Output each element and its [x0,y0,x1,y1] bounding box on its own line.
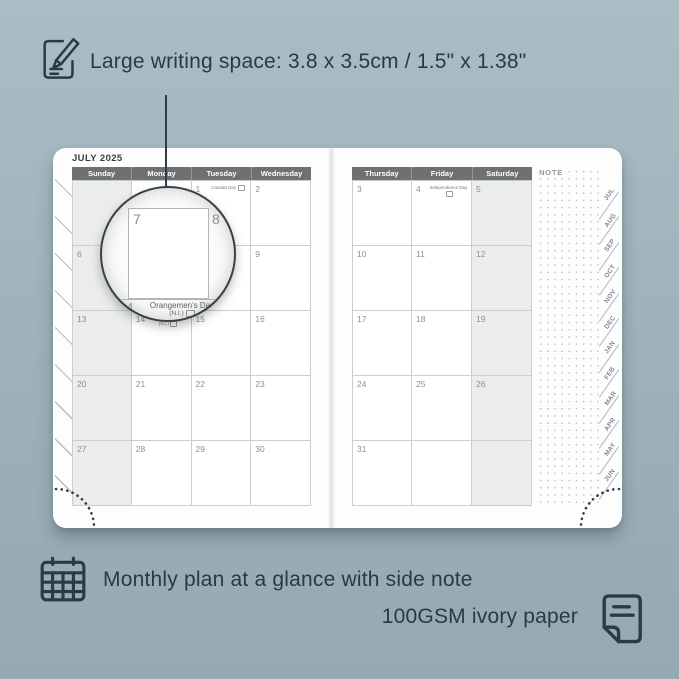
day-header-friday: Friday [411,167,471,180]
calendar-cell: 31 [352,441,412,506]
calendar-cell: 30 [251,441,311,506]
date-number: 30 [255,444,264,454]
date-number: 12 [476,249,485,259]
calendar-cell: 17 [352,311,412,376]
calendar-cell [472,441,532,506]
month-tab-jan: JAN [596,338,622,364]
date-number: 9 [255,249,260,259]
bottom-caption-line1: Monthly plan at a glance with side note [103,568,473,592]
pencil-note-icon [37,32,83,81]
calendar-cell: 2 [251,181,311,246]
date-number: 22 [196,379,205,389]
day-header-saturday: Saturday [472,167,532,180]
calendar-cell: 11 [412,246,472,311]
calendar-cell: 18 [412,311,472,376]
month-tab-may: MAY [596,440,622,466]
date-number: 4 [416,184,421,194]
product-image: Large writing space: 3.8 x 3.5cm / 1.5" … [0,0,679,679]
flag-icon [446,191,453,197]
calendar-cell: 29 [192,441,252,506]
month-tab-sep: SEP [596,236,622,262]
calendar-grid-icon [38,554,88,604]
calendar-cell: 15 [192,311,252,376]
date-number: 10 [357,249,366,259]
calendar-cell: 19 [472,311,532,376]
calendar-cell: 26 [472,376,532,441]
magnified-holiday-region: (N.I.) [136,310,228,317]
calendar-cell: 4Independence Day [412,181,472,246]
date-number: 20 [77,379,86,389]
date-number: 24 [357,379,366,389]
magnified-date-7: 7 [133,211,141,227]
month-tab-jun: JUN [596,466,622,492]
day-header-row-left: Sunday Monday Tuesday Wednesday [72,167,311,180]
date-number: 19 [476,314,485,324]
top-caption: Large writing space: 3.8 x 3.5cm / 1.5" … [90,50,526,74]
date-number: 31 [357,444,366,454]
holiday-label: Independence Day [428,185,469,197]
holiday-label: Canada Day [208,185,249,191]
magnified-holiday-name: Orangemen's Day [136,301,228,310]
month-tab-label: JUL [603,187,616,202]
calendar-cell: 16 [251,311,311,376]
date-number: 5 [476,184,481,194]
date-number: 13 [77,314,86,324]
month-tab-nov: NOV [596,287,622,313]
day-header-wednesday: Wednesday [251,167,311,180]
magnified-date-14: 14 [117,300,134,317]
calendar-cell: 13 [72,311,132,376]
day-header-sunday: Sunday [72,167,131,180]
date-number: 6 [77,249,82,259]
paper-sheet-icon [597,591,645,649]
date-number: 3 [357,184,362,194]
flag-icon [238,185,245,191]
date-number: 27 [77,444,86,454]
month-tab-apr: APR [596,415,622,441]
month-tab-oct: OCT [596,262,622,288]
date-number: 2 [255,184,260,194]
bottom-caption-line2: 100GSM ivory paper [382,605,578,629]
month-title: JULY 2025 [72,153,123,164]
callout-connector-line [165,95,167,188]
month-tab-feb: FEB [596,364,622,390]
month-tab-mar: MAR [596,389,622,415]
date-number: 29 [196,444,205,454]
calendar-cell: 24 [352,376,412,441]
calendar-cell: 12 [472,246,532,311]
day-header-row-right: Thursday Friday Saturday [352,167,532,180]
left-edge-hatching [55,166,73,512]
calendar-cell: 27 [72,441,132,506]
calendar-cell: 5 [472,181,532,246]
date-number: 26 [476,379,485,389]
date-number: 25 [416,379,425,389]
calendar-cell: 25 [412,376,472,441]
calendar-cell: 20 [72,376,132,441]
date-number: 16 [255,314,264,324]
calendar-cell: 3 [352,181,412,246]
date-number: 21 [136,379,145,389]
month-tab-strip: JULAUGSEPOCTNOVDECJANFEBMARAPRMAYJUN [596,185,622,491]
day-header-tuesday: Tuesday [191,167,251,180]
note-label: NOTE [539,168,566,177]
note-dot-grid [537,168,599,505]
date-number: 28 [136,444,145,454]
date-number: 23 [255,379,264,389]
calendar-cell: 9 [251,246,311,311]
magnified-date-8: 8 [212,211,220,227]
month-tab-jul: JUL [596,185,622,211]
date-number: 11 [416,249,425,259]
month-tab-dec: DEC [596,313,622,339]
calendar-cell: 28 [132,441,192,506]
calendar-cell: 10 [352,246,412,311]
day-header-thursday: Thursday [352,167,411,180]
calendar-cell: 23 [251,376,311,441]
date-number: 17 [357,314,366,324]
date-number: 18 [416,314,425,324]
calendar-cell [412,441,472,506]
calendar-grid-right: 34Independence Day510111217181924252631 [352,180,532,506]
calendar-cell: 22 [192,376,252,441]
month-tab-aug: AUG [596,211,622,237]
magnifier-circle: 7 8 14 Orangemen's Day (N.I.) [100,186,236,322]
flag-icon [186,310,195,317]
calendar-cell: 21 [132,376,192,441]
day-header-monday: Monday [131,167,191,180]
